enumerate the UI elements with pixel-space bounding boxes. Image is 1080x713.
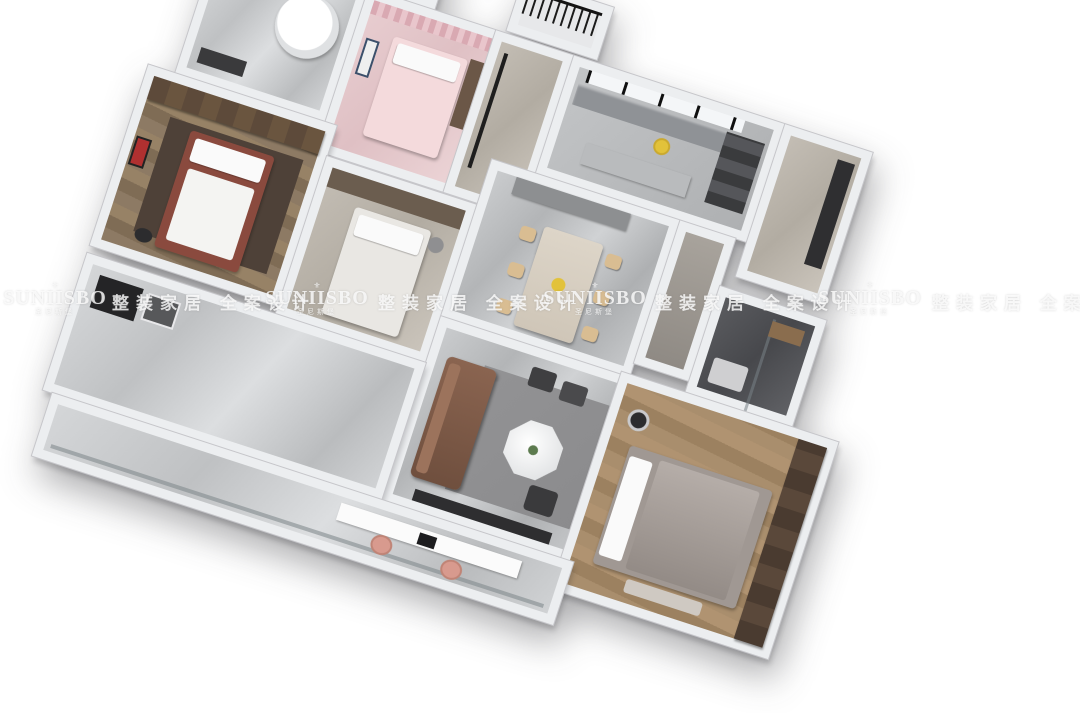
flower-centerpiece bbox=[550, 276, 568, 294]
kitchen-dish bbox=[654, 138, 670, 154]
left-bedroom-art bbox=[130, 138, 149, 166]
dining-chair bbox=[603, 253, 623, 271]
desk-laptop bbox=[416, 532, 437, 549]
dining-chair bbox=[580, 325, 600, 343]
apartment-3d-floorplan bbox=[0, 0, 970, 713]
dining-chair bbox=[506, 261, 526, 279]
bathroom-fixture bbox=[707, 357, 749, 393]
corner-bathtub bbox=[267, 0, 348, 67]
dining-chair bbox=[494, 297, 514, 315]
floor-lamp bbox=[628, 410, 648, 430]
master-bed bbox=[592, 445, 773, 609]
dining-chair bbox=[592, 289, 612, 307]
kids-bed-pillows bbox=[392, 43, 461, 83]
watermark-slogan: 整装家居 全案设计 bbox=[932, 289, 1080, 314]
entry-cabinet bbox=[804, 159, 855, 269]
render-canvas: { "scene": { "kind": "3d-isometric-floor… bbox=[0, 0, 1080, 608]
bath-shelf bbox=[768, 321, 805, 347]
kids-bed bbox=[362, 36, 468, 159]
appliance-block bbox=[143, 295, 179, 327]
balcony-railing-icon bbox=[522, 0, 603, 37]
sofa-backrest bbox=[415, 362, 462, 474]
table-plant bbox=[527, 444, 540, 457]
middle-bed-pillows bbox=[353, 214, 424, 256]
kitchen-island bbox=[580, 143, 691, 198]
bathroom-vanity bbox=[197, 47, 248, 77]
kids-wall-art bbox=[357, 40, 377, 75]
appliance-block bbox=[90, 275, 144, 322]
middle-bedroom-bed bbox=[321, 207, 432, 338]
dining-chair bbox=[518, 225, 538, 243]
left-bed-duvet bbox=[165, 167, 255, 261]
